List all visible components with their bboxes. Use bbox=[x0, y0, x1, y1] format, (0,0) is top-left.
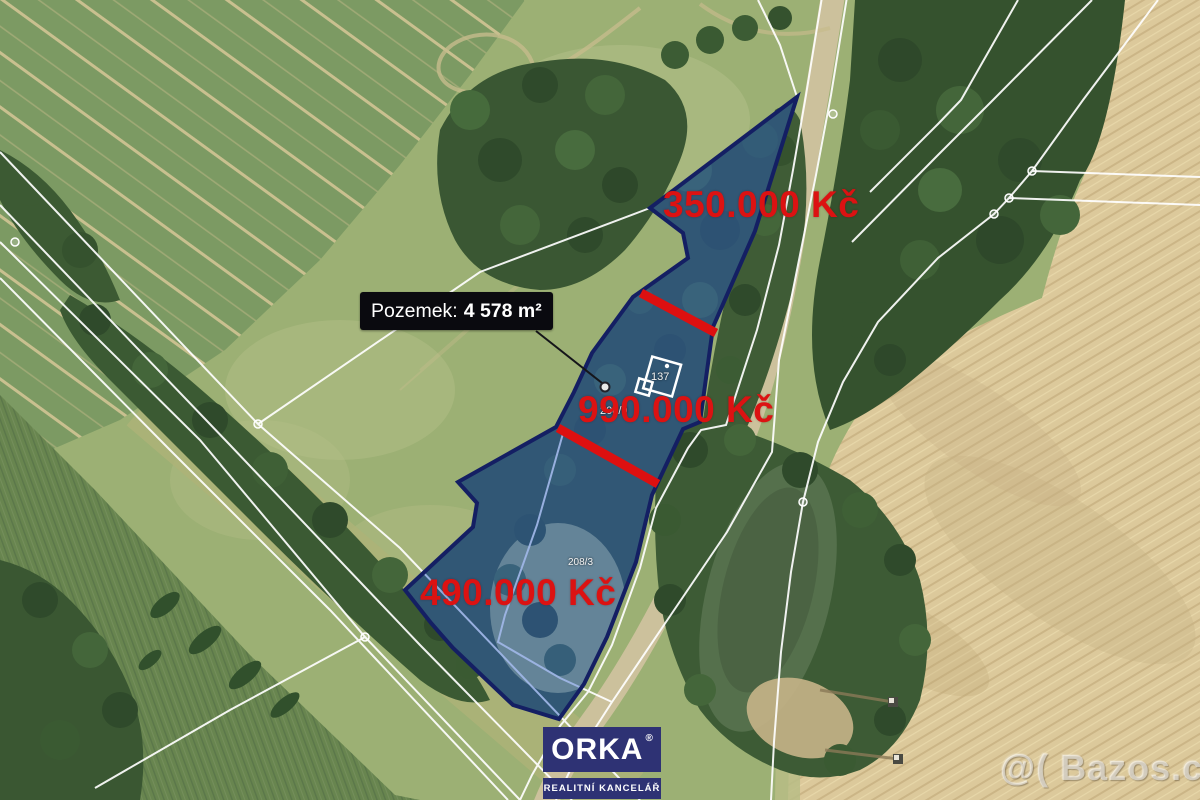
agency-logo: ORKA® REALITNÍ KANCELÁŘ bbox=[543, 727, 661, 799]
parcel-number-building: 137 bbox=[651, 371, 669, 383]
agency-logo-subtitle: REALITNÍ KANCELÁŘ bbox=[543, 778, 661, 799]
parcel-number-south: 208/3 bbox=[568, 557, 593, 568]
parcel-area-value: 4 578 m² bbox=[464, 300, 542, 322]
listing-aerial-map: 208/9 208/3 137 350.000 Kč 990.000 Kč 49… bbox=[0, 0, 1200, 800]
agency-logo-wordmark: ORKA® bbox=[543, 727, 661, 772]
price-label-north: 350.000 Kč bbox=[663, 184, 859, 226]
agency-logo-text: ORKA bbox=[551, 733, 643, 767]
parcel-area-prefix: Pozemek: bbox=[371, 300, 458, 322]
parcel-area-label: Pozemek:4 578 m² bbox=[360, 292, 553, 330]
bazos-watermark: @( Bazos.cz bbox=[1000, 747, 1200, 789]
registered-trademark-icon: ® bbox=[645, 733, 652, 744]
price-label-south: 490.000 Kč bbox=[420, 572, 616, 614]
price-label-middle: 990.000 Kč bbox=[578, 389, 774, 431]
